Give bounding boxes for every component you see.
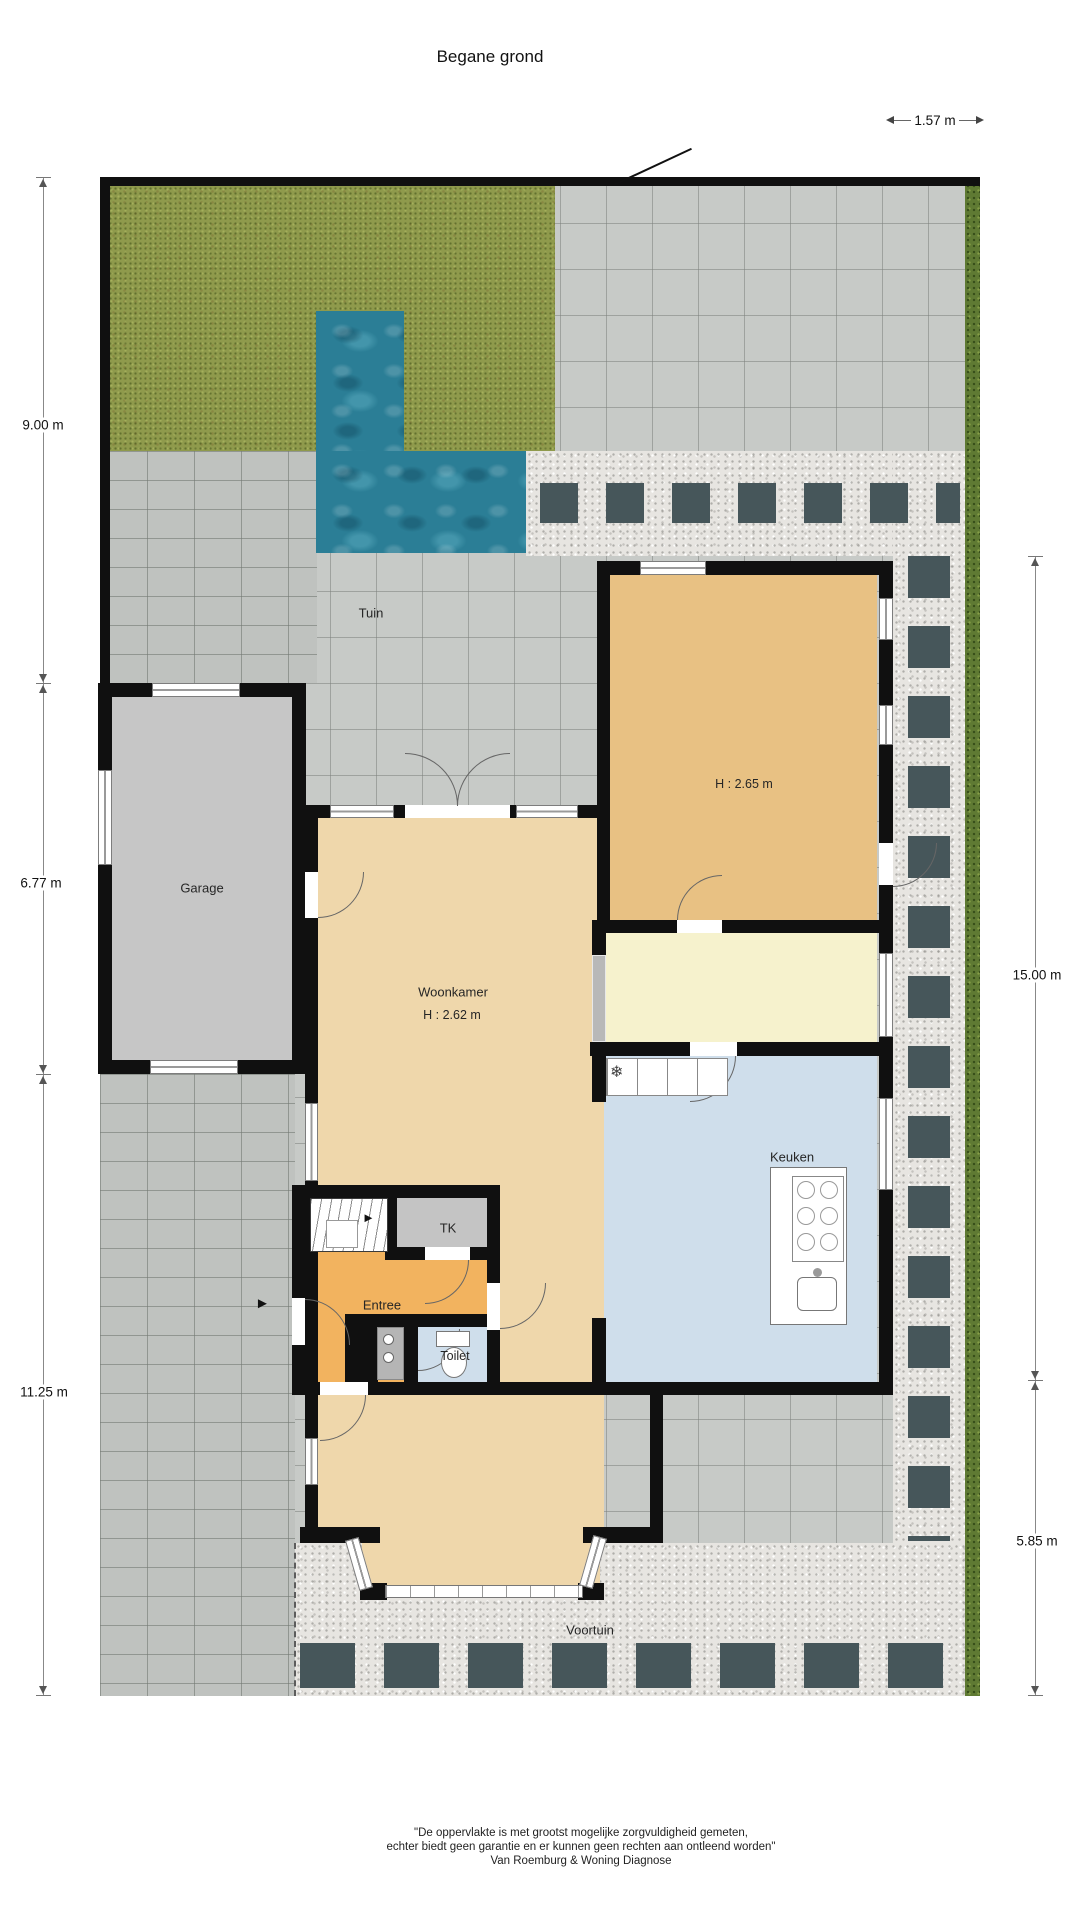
dimension-label-15m: 15.00 m — [1009, 968, 1066, 983]
window — [879, 953, 893, 1037]
washbasin-bowl — [383, 1334, 394, 1345]
page-title: Begane grond — [0, 47, 980, 67]
window — [640, 561, 706, 575]
wall — [292, 1185, 305, 1395]
window — [305, 1103, 318, 1181]
room-label-back-room-height: H : 2.65 m — [715, 777, 773, 791]
wall — [292, 1185, 500, 1198]
dimension-arrow — [39, 1686, 47, 1694]
dimension-line — [959, 120, 976, 121]
dimension-arrow — [1031, 1686, 1039, 1694]
room-label-woonkamer-height: H : 2.62 m — [423, 1008, 481, 1022]
room-floor-garage — [112, 697, 292, 1060]
dimension-arrow — [39, 685, 47, 693]
window — [330, 805, 394, 818]
wall — [345, 1314, 500, 1327]
wall — [388, 1198, 397, 1253]
door-opening — [879, 843, 893, 885]
bay-window-band — [385, 1585, 583, 1598]
cooktop-burner — [797, 1181, 815, 1199]
swimming-pool-vertical-arm — [316, 311, 404, 451]
sink-faucet — [813, 1268, 822, 1277]
door-opening — [677, 920, 722, 933]
sliding-door — [592, 955, 606, 1042]
door-opening — [425, 1247, 470, 1260]
dimension-tick — [36, 1695, 51, 1696]
room-floor-bijkeuken — [606, 933, 877, 1042]
dimension-label-9m: 9.00 m — [18, 418, 67, 433]
wall — [592, 920, 606, 955]
dimension-arrow — [1031, 1371, 1039, 1379]
dimension-tick — [36, 177, 51, 178]
cooktop-burner — [797, 1207, 815, 1225]
wall — [345, 1327, 378, 1382]
wall — [98, 683, 112, 1074]
room-floor-back-room — [610, 575, 877, 920]
kitchen-counter — [606, 1058, 728, 1096]
wall — [300, 1527, 380, 1543]
footer-line-3: Van Roemburg & Woning Diagnose — [146, 1854, 1016, 1868]
dimension-arrow — [39, 179, 47, 187]
dimension-label-585m: 5.85 m — [1012, 1534, 1061, 1549]
dimension-arrow — [1031, 558, 1039, 566]
dimension-label-157m: 1.57 m — [911, 113, 958, 128]
window — [879, 1098, 893, 1190]
room-label-tk: TK — [440, 1221, 457, 1236]
door-opening — [305, 872, 318, 918]
door-opening — [405, 805, 510, 818]
cooktop-burner — [820, 1207, 838, 1225]
dimension-arrow — [39, 1076, 47, 1084]
footer-line-1: "De oppervlakte is met grootst mogelijke… — [146, 1826, 1016, 1840]
wall — [597, 561, 610, 933]
room-label-garage: Garage — [180, 881, 223, 896]
dimension-tick — [1028, 556, 1043, 557]
wall — [500, 1382, 893, 1395]
dark-stepping-tiles-voortuin — [300, 1643, 960, 1688]
footer-disclaimer: "De oppervlakte is met grootst mogelijke… — [146, 1826, 1016, 1868]
dimension-tick — [1028, 1695, 1043, 1696]
dimension-label-1125m: 11.25 m — [16, 1385, 72, 1400]
dimension-line — [894, 120, 911, 121]
wall — [597, 920, 893, 933]
door-opening — [320, 1382, 368, 1395]
wall — [292, 683, 306, 1074]
window — [150, 1060, 238, 1074]
dimension-line-right — [1035, 556, 1036, 1696]
window — [152, 683, 240, 697]
brick-paving-lower-left — [100, 1074, 295, 1696]
dimension-tick — [1028, 1380, 1043, 1381]
kitchen-sink — [797, 1277, 837, 1311]
wall — [404, 1327, 418, 1382]
room-label-tuin: Tuin — [359, 606, 384, 621]
dimension-arrow — [39, 1065, 47, 1073]
freezer-icon: ❄ — [610, 1062, 623, 1082]
footer-line-2: echter biedt geen garantie en er kunnen … — [146, 1840, 1016, 1854]
entrance-arrow-icon: ► — [255, 1295, 270, 1312]
room-label-voortuin: Voortuin — [566, 1623, 614, 1638]
room-label-woonkamer: Woonkamer — [418, 985, 488, 1000]
swimming-pool-horizontal-arm — [316, 451, 526, 553]
wall — [592, 1042, 606, 1102]
dimension-tick — [36, 683, 51, 684]
window — [516, 805, 578, 818]
door-opening — [292, 1298, 305, 1345]
dimension-line-left — [43, 177, 44, 1696]
wall — [650, 1395, 663, 1535]
dimension-arrow — [886, 116, 894, 124]
door-opening — [487, 1283, 500, 1330]
washbasin-bowl — [383, 1352, 394, 1363]
plot-border-left — [100, 177, 110, 683]
dimension-arrow — [976, 116, 984, 124]
staircase-landing — [326, 1220, 358, 1248]
window — [879, 598, 893, 640]
dark-stepping-tiles-right — [908, 556, 950, 1541]
cooktop-burner — [820, 1233, 838, 1251]
door-opening — [690, 1042, 737, 1056]
dark-stepping-tiles-top — [540, 483, 960, 523]
floorplan-page: ► ❄ ► Tuin Garage H : 2.65 m Woonkamer H… — [0, 0, 1080, 1920]
brick-paving-upper-left — [100, 451, 317, 683]
room-label-toilet: Toilet — [440, 1349, 469, 1363]
dimension-label-677m: 6.77 m — [16, 876, 65, 891]
dimension-arrow — [39, 674, 47, 682]
window — [879, 705, 893, 745]
cooktop-burner — [797, 1233, 815, 1251]
dimension-arrow — [1031, 1382, 1039, 1390]
toilet-tank — [436, 1331, 470, 1347]
plot-boundary-dashed — [294, 1543, 296, 1696]
window — [305, 1438, 318, 1485]
hedge-right — [965, 177, 980, 1696]
plot-border-top — [100, 177, 980, 186]
room-floor-woonkamer — [317, 818, 604, 1543]
window — [98, 770, 112, 865]
dimension-tick — [36, 1074, 51, 1075]
wall — [590, 1042, 893, 1056]
dimension-width-top: 1.57 m — [886, 112, 984, 128]
room-label-entree: Entree — [363, 1298, 401, 1313]
room-label-keuken: Keuken — [770, 1150, 814, 1165]
stairs-direction-icon: ► — [362, 1210, 375, 1225]
cooktop-burner — [820, 1181, 838, 1199]
